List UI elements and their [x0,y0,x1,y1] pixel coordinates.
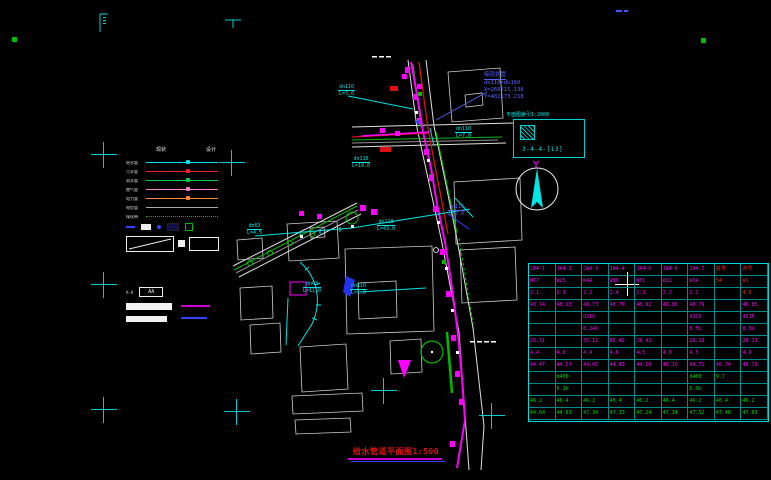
pipe-label: dn110L=19.0 [352,156,370,169]
legend-line-marker [186,187,190,191]
table-cell: 2.2 [662,288,689,300]
detail-index-label: 3-4-4-[13] [522,146,563,153]
pipe-length: L=19.0 [352,163,370,169]
chamber-symbol [167,223,179,231]
table-cell: 46.2 [582,396,609,408]
table-cell [715,348,742,360]
pipe-diameter: dn110 [448,204,465,211]
coordinate-callout: 接现状管 dn110×dn160 X=266215.138 Y=482173.2… [484,72,524,101]
north-tip-mark [533,161,539,168]
table-cell: 2.2 [582,288,609,300]
drawing-title: 给水管道平面图1:500 [346,446,446,457]
table-cell: 44.07 [582,360,609,372]
table-cell: 9.7 [715,372,742,384]
white-marks [300,56,496,354]
table-cell: 26.13 [688,336,715,348]
table-cell: 44.43 [609,360,636,372]
slope-box-symbol [126,236,174,252]
table-cell: 8.5‰ [688,324,715,336]
legend-rows: 给水管污水管雨水管燃气管电力管电信管绿化带 [126,158,218,221]
legend-item: 电信管 [126,203,218,212]
table-cell: 48.93 [556,300,583,312]
table-cell [635,372,662,384]
table-cell: 48.73 [582,300,609,312]
table-cell: 48.79 [741,360,768,372]
table-cell: 44.10 [635,360,662,372]
table-cell: d400 [556,372,583,384]
table-cell: W77 [529,276,556,288]
table-cell [741,384,768,396]
table-cell [715,288,742,300]
table-cell: 47.48 [715,408,742,420]
table-cell: 28.31 [529,336,556,348]
table-cell: JA4-7 [688,264,715,276]
legend-line-sample [146,189,218,190]
table-cell: JA4-6 [662,264,689,276]
legend-line-marker [186,160,190,164]
table-cell: 46.2 [529,396,556,408]
callout-pipe-size: dn110×dn160 [484,80,524,87]
pipe-label: dn63L=4.5 [247,223,262,236]
table-cell: 47.34 [662,408,689,420]
table-cell: JA4-4 [609,264,636,276]
pipe-diameter: dn110 [455,126,472,133]
legend-line-marker [186,196,190,200]
table-cell: 48.92 [635,300,662,312]
registration-cross-icon [91,272,117,298]
table-cell [529,384,556,396]
callout-leader [436,92,487,120]
legend-section-row: A-A AA [126,285,163,299]
table-cell: 28.42 [635,336,662,348]
table-cell [582,372,609,384]
table-cell: 4.5 [688,348,715,360]
legend-item-label: 雨水管 [126,179,146,183]
table-cell: 4.4 [529,348,556,360]
table-cell: 44.47 [529,360,556,372]
table-cell [662,372,689,384]
table-cell: 44.64 [529,408,556,420]
table-cell [529,312,556,324]
legend-header-design: 设计 [206,146,216,153]
table-cell: 47.34 [582,408,609,420]
registration-cross-icon [91,142,117,168]
pipe-label: dn110L=7.0 [455,126,472,139]
legend-bars [126,303,222,331]
table-cell: 46.4 [556,396,583,408]
pipe-diameter: dn110 [377,219,395,226]
table-cell [609,372,636,384]
table-cell [662,324,689,336]
table-cell [662,384,689,396]
table-cell: 46.2 [688,396,715,408]
detail-index-caption: 平面图索引1:2000 [506,111,549,118]
title-underline-magenta [348,458,442,460]
table-cell: 8.5‰ [741,324,768,336]
hatch-square-icon [520,125,535,140]
valve-symbol [126,226,135,228]
table-cell [529,372,556,384]
pipe-label: dn110L=5.0 [350,283,367,296]
table-cell [635,312,662,324]
pipe-diameter: dn110 [352,156,370,163]
table-cell [715,300,742,312]
table-cell: W1 [741,276,768,288]
table-cell [715,312,742,324]
legend-item: 给水管 [126,158,218,167]
table-cell: 44.63 [556,408,583,420]
table-cell: 4.6 [741,348,768,360]
filled-square-symbol [178,240,185,247]
table-cell: 44.57 [556,360,583,372]
table-cell: 48.86 [662,300,689,312]
table-cell: 5.2‰ [556,384,583,396]
table-cell: 48.71 [688,360,715,372]
misc-top-marks [12,10,706,43]
registration-cross-icon [371,378,397,404]
legend-item-label: 燃气管 [126,188,146,192]
table-cell: 47.63 [741,408,768,420]
table-cell: JA4-3 [582,264,609,276]
legend-item: 燃气管 [126,185,218,194]
table-cell: d315 [582,312,609,324]
empty-box-symbol [189,237,219,251]
legend-box-row [126,236,218,252]
legend-line-sample [146,216,218,217]
table-cell: 46.4 [609,396,636,408]
table-cell: W12 [662,276,689,288]
table-cell: 48.79 [609,300,636,312]
registration-cross-icon [479,403,505,429]
table-cell [635,384,662,396]
legend-line-sample [146,180,218,181]
table-cell [529,324,556,336]
pipe-length: L=4.5 [247,230,262,236]
green-utility-lines [234,64,502,393]
pipe-diameter: dn63 [247,223,262,230]
legend-line-marker [186,169,190,173]
table-cell: 46.4 [662,396,689,408]
table-cell [582,384,609,396]
table-cell: d315 [688,312,715,324]
table-cell: 桩号 [715,264,742,276]
table-cell: 48.74 [715,360,742,372]
manhole-symbol [141,224,151,230]
north-needle [531,168,543,208]
pipe-label: dn110L=43.0 [377,219,395,232]
table-cell: JA4-5 [635,264,662,276]
legend-line-sample [146,207,218,208]
legend-item: 雨水管 [126,176,218,185]
pipe-diameter: dn110 [338,84,355,91]
table-cell: 4.4 [582,348,609,360]
pipe-length: L=7.0 [449,211,464,217]
callout-title: 接现状管 [484,72,506,80]
legend-line-sample [146,162,218,163]
table-cell: 4.6 [662,348,689,360]
section-label: A-A [126,290,133,295]
magenta-pipe [290,62,465,468]
table-cell: JA4-1 [529,264,556,276]
table-cell: 井号 [741,264,768,276]
pipe-diameter: dn63 [303,281,321,288]
north-arrow [514,160,562,214]
table-cell: 2.3 [635,288,662,300]
table-cell: 85.42 [609,336,636,348]
title-underline-blue [351,461,445,462]
table-cell [741,372,768,384]
callout-y-coordinate: Y=482173.218 [484,94,524,101]
table-cell: d400 [688,372,715,384]
table-cell: 5.0‰ [688,384,715,396]
detail-index-box[interactable]: 3-4-4-[13] [513,119,585,158]
tree-symbol [185,223,193,231]
table-cell [635,324,662,336]
pipe-length: L=43.0 [377,226,395,232]
table-cell [556,336,583,348]
table-cell: 48.79 [688,300,715,312]
legend-item-label: 污水管 [126,170,146,174]
registration-cross-icon [224,399,250,425]
legend-item-label: 电力管 [126,197,146,201]
table-cell: 8.24‰ [582,324,609,336]
legend-line-marker [186,178,190,182]
table-cell: 47.24 [635,408,662,420]
roads [233,60,514,470]
table-cell: 4.6 [609,348,636,360]
table-cell: 4.6 [741,288,768,300]
table-cell: 46.2 [741,396,768,408]
legend-item-label: 电信管 [126,206,146,210]
pipe-label: dn110L=7.0 [448,204,465,217]
table-cell [662,336,689,348]
pipe-diameter: dn110 [350,283,367,290]
legend-header: 现状 设计 [156,146,216,153]
table-cell: 2.1 [688,288,715,300]
blue-sample-line [181,317,207,319]
pipe-length: L=11.0 [303,288,321,294]
section-box: AA [139,287,163,297]
scale-bar-1 [126,303,172,310]
table-cell: 28.13 [741,336,768,348]
table-cell: 35.12 [582,336,609,348]
table-cell: 4.6 [556,348,583,360]
legend: 现状 设计 给水管污水管雨水管燃气管电力管电信管绿化带 A-A AA [126,146,222,332]
table-cell: 4.5 [635,348,662,360]
table-cell: 47.33 [609,408,636,420]
table-cell: JA4-2 [556,264,583,276]
legend-item-label: 绿化带 [126,215,146,219]
table-cell [609,312,636,324]
table-cell: d315 [741,312,768,324]
pipe-label: dn63L=11.0 [303,281,321,294]
table-cell [556,324,583,336]
table-cell: 48.85 [741,300,768,312]
table-cell [715,336,742,348]
cad-canvas: 现状 设计 给水管污水管雨水管燃气管电力管电信管绿化带 A-A AA [0,0,771,480]
sheet-marks [100,14,241,32]
table-cell [715,324,742,336]
magenta-sample-line [181,305,210,307]
node-symbol [157,225,161,229]
table-cell: 2.3 [556,288,583,300]
table-cell [556,312,583,324]
table-cell [609,324,636,336]
pipe-length: L=3.0 [339,91,354,97]
elevation-table: JA4-1JA4-2JA4-3JA4-4JA4-5JA4-6JA4-7桩号井号W… [528,263,769,422]
table-cell: W14 [688,276,715,288]
table-cell [609,384,636,396]
table-cell: W19 [609,276,636,288]
legend-item: 污水管 [126,167,218,176]
table-cell: 54 [715,276,742,288]
legend-symbol-row [126,222,218,231]
table-cell: 46.2 [635,396,662,408]
legend-item: 绿化带 [126,212,218,221]
table-cell [715,384,742,396]
pipe-length: L=7.0 [456,133,471,139]
table-cell: W42 [582,276,609,288]
table-cell: 48.10 [662,360,689,372]
table-cell: 48.74 [529,300,556,312]
table-cell: 2.1 [529,288,556,300]
scale-bar-2 [126,316,167,322]
table-cell [662,312,689,324]
legend-header-existing: 现状 [156,146,166,153]
registration-cross-icon [91,397,117,423]
table-cell: 2.4 [609,288,636,300]
registration-cross-icon [219,150,245,176]
table-cell: W31 [635,276,662,288]
legend-line-sample [146,171,218,172]
table-cell: 46.4 [715,396,742,408]
legend-item-label: 给水管 [126,161,146,165]
legend-line-sample [146,198,218,199]
legend-item: 电力管 [126,194,218,203]
pipe-label: dn110L=3.0 [338,84,355,97]
callout-x-coordinate: X=266215.138 [484,87,524,94]
pipe-length: L=5.0 [351,290,366,296]
table-cell: 47.52 [688,408,715,420]
table-cell: W25 [556,276,583,288]
